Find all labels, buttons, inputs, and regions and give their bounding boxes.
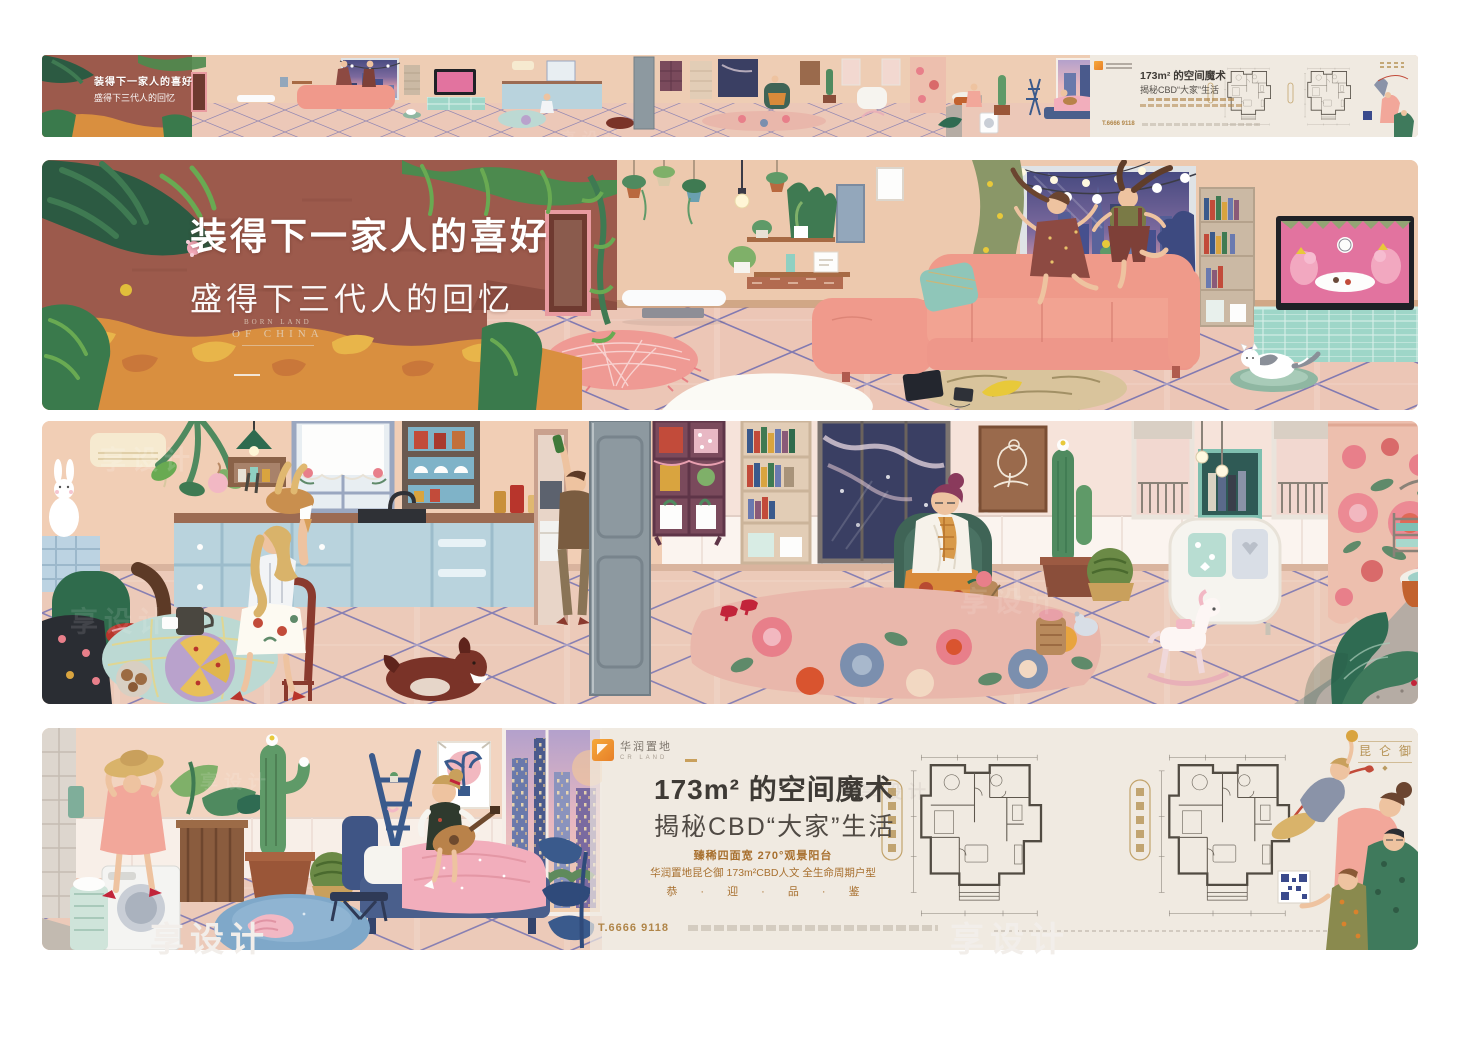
- qr-code: [1278, 871, 1310, 903]
- panel-subheadline-mini: 揭秘CBD“大家”生活: [1140, 83, 1219, 96]
- tagline-line1: BORN LAND: [232, 318, 324, 326]
- disclaimer-illegible: [1142, 123, 1262, 126]
- feature-text-illegible: [1148, 98, 1234, 101]
- wall-niche-books: [1200, 451, 1260, 517]
- feature-line1: 臻稀四面宽 270°观景阳台: [602, 847, 924, 863]
- banner-detail-right: 华润置地 CR LAND 173m² 的空间魔术 揭秘CBD“大家”生活 臻稀四…: [42, 728, 1418, 950]
- slogan-line1: 装得下一家人的喜好: [190, 206, 550, 260]
- portrait-poster: [980, 427, 1046, 511]
- ceremony-line: 恭 · 迎 · 品 · 鉴: [602, 883, 924, 899]
- slogan-line2: 盛得下三代人的回忆: [190, 274, 550, 320]
- tagline-rule: [242, 345, 314, 346]
- disclaimer-illegible: [688, 925, 938, 931]
- watermark: 享设计: [100, 1010, 196, 1047]
- slogan-dash: [234, 374, 260, 376]
- slogan-line2-mini: 盛得下三代人的回忆: [94, 91, 193, 104]
- emblem-ornament: ◆: [1348, 764, 1418, 772]
- banner-detail-left: 装得下一家人的喜好 盛得下三代人的回忆 BORN LAND OF CHINA: [42, 160, 1418, 410]
- headline-accent-dash: [685, 759, 697, 762]
- feature-line2: 华润置地昆仑御 173m²CBD人文 全生命周期户型: [602, 865, 924, 880]
- brand-logo-texts: 华润置地 CR LAND: [620, 738, 672, 761]
- panel-subheadline: 揭秘CBD“大家”生活: [654, 807, 895, 843]
- emblem-text: 昆仑御: [1348, 742, 1418, 759]
- brand-logo-text-mini: [1106, 62, 1132, 69]
- banner-detail-middle: [42, 421, 1418, 704]
- emblem-rule-bottom: [1358, 762, 1412, 763]
- phone-number-mini: T.6666 9118: [1102, 121, 1135, 127]
- page: { "page": { "background": "#ffffff", "wa…: [0, 0, 1460, 972]
- tagline-line2: OF CHINA: [232, 328, 324, 340]
- brand-logo: 华润置地 CR LAND: [592, 738, 672, 761]
- living-bookshelf: [742, 421, 810, 563]
- banner-full-miniature: 装得下一家人的喜好 盛得下三代人的回忆 173m² 的空间魔术 揭秘CBD“大家…: [42, 55, 1418, 137]
- cr-land-mark-icon: [1094, 61, 1103, 70]
- slogan-mini: 装得下一家人的喜好 盛得下三代人的回忆: [94, 73, 193, 104]
- project-emblem: 昆仑御 ◆: [1348, 738, 1418, 772]
- slogan: 装得下一家人的喜好 盛得下三代人的回忆: [190, 206, 550, 320]
- emblem-rule-top: [1358, 741, 1412, 742]
- purple-cabinet: [654, 421, 724, 545]
- brand-sub: CR LAND: [620, 755, 672, 761]
- kitchen-hall-illustration: [42, 421, 1418, 704]
- phone-number: T.6666 9118: [598, 922, 669, 934]
- panel-headline: 173m² 的空间魔术: [654, 768, 894, 808]
- cr-land-mark-icon: [592, 739, 614, 761]
- panel-headline-mini: 173m² 的空间魔术: [1140, 68, 1226, 83]
- tv-wall: [1254, 216, 1418, 362]
- slogan-tagline: BORN LAND OF CHINA: [232, 318, 324, 346]
- slogan-line1-mini: 装得下一家人的喜好: [94, 73, 193, 88]
- white-armchair: [1170, 519, 1280, 635]
- brand-name: 华润置地: [620, 738, 672, 754]
- brand-logo-mini: [1094, 61, 1132, 70]
- feature-text-illegible: [1140, 104, 1244, 107]
